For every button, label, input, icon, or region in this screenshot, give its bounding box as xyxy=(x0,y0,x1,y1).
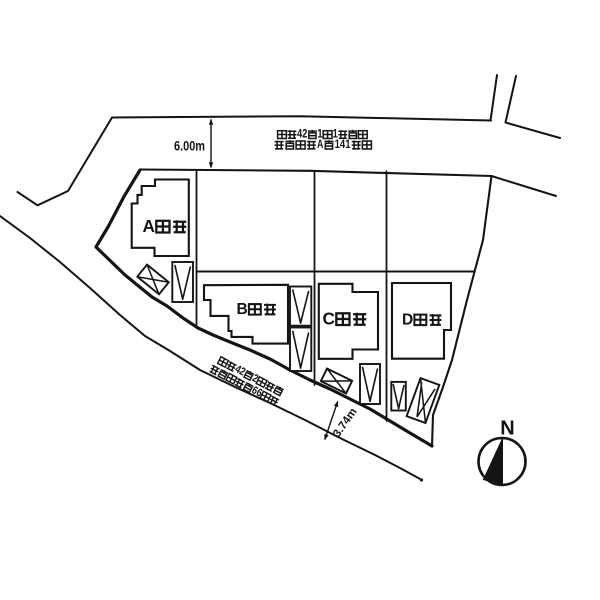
svg-text:42: 42 xyxy=(297,127,308,141)
svg-text:A: A xyxy=(143,216,155,236)
svg-text:D: D xyxy=(402,312,413,329)
svg-text:C: C xyxy=(323,308,335,328)
svg-text:N: N xyxy=(500,418,514,440)
svg-text:141: 141 xyxy=(335,137,351,151)
svg-text:6.00m: 6.00m xyxy=(174,138,205,154)
svg-text:B: B xyxy=(237,301,248,318)
svg-text:A: A xyxy=(317,137,324,151)
